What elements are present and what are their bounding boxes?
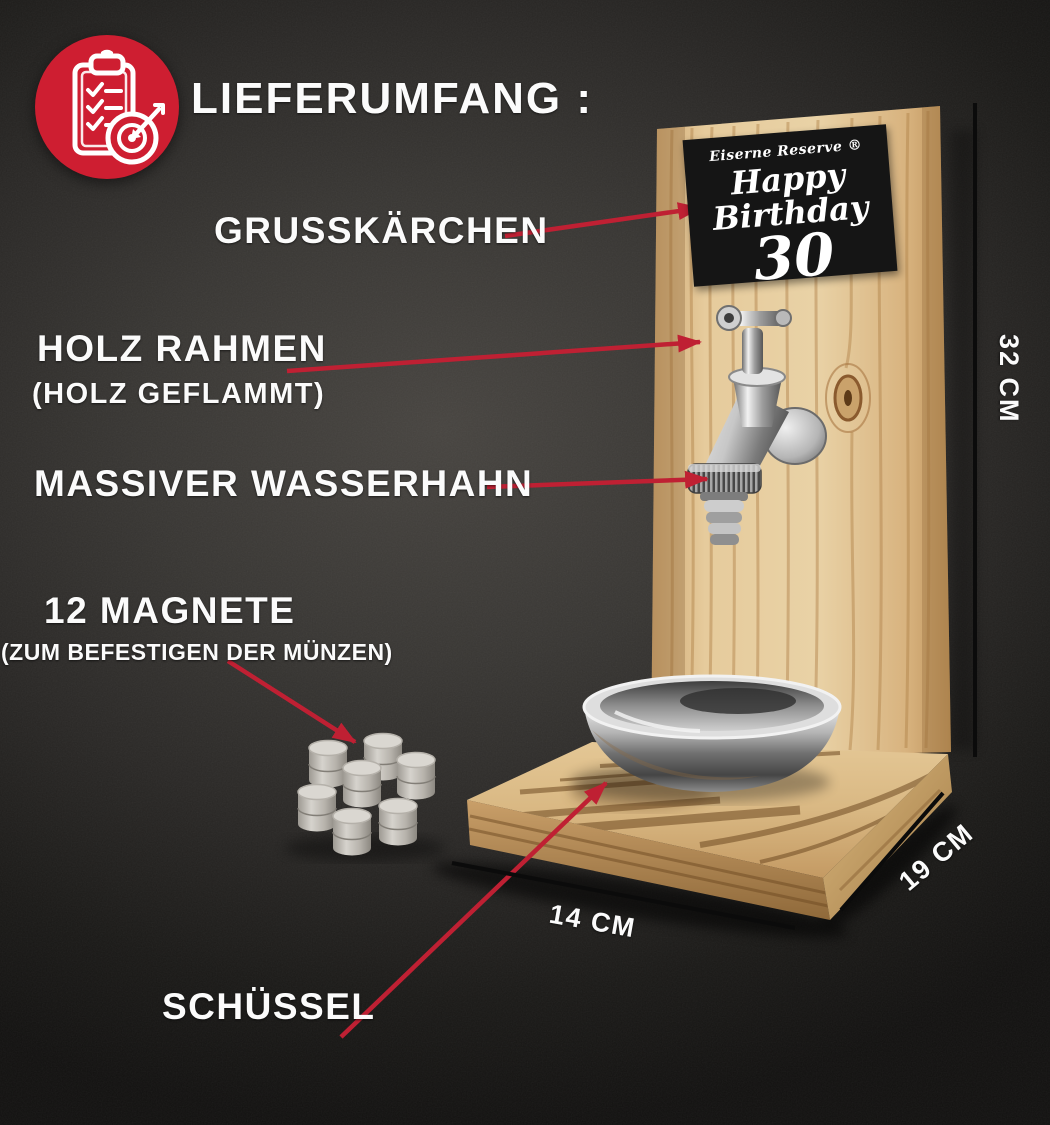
label-greeting-card: GRUSSKÄRCHEN	[214, 210, 549, 252]
label-magnets: 12 MAGNETE	[44, 590, 295, 632]
dimension-height-label: 32 CM	[993, 334, 1024, 424]
greeting-card: Eiserne Reserve ® Happy Birthday 30	[683, 124, 898, 287]
label-wood-frame-sub: (HOLZ GEFLAMMT)	[32, 378, 325, 411]
clipboard-checklist-target-icon	[35, 35, 179, 179]
product-infographic: LIEFERUMFANG : GRUSSKÄRCHEN HOLZ RAHMEN …	[0, 0, 1050, 1125]
label-magnets-sub: (ZUM BEFESTIGEN DER MÜNZEN)	[1, 639, 393, 666]
page-title: LIEFERUMFANG :	[191, 74, 593, 124]
label-faucet: MASSIVER WASSERHAHN	[34, 463, 533, 505]
bowl	[570, 676, 840, 802]
arrow-magnets	[228, 661, 355, 742]
target-dart-icon	[108, 105, 163, 162]
arrow-wood-frame	[287, 342, 700, 371]
magnets	[285, 734, 445, 862]
label-wood-frame: HOLZ RAHMEN	[37, 328, 327, 370]
faucet-stem	[742, 328, 763, 374]
label-bowl: SCHÜSSEL	[162, 986, 375, 1028]
